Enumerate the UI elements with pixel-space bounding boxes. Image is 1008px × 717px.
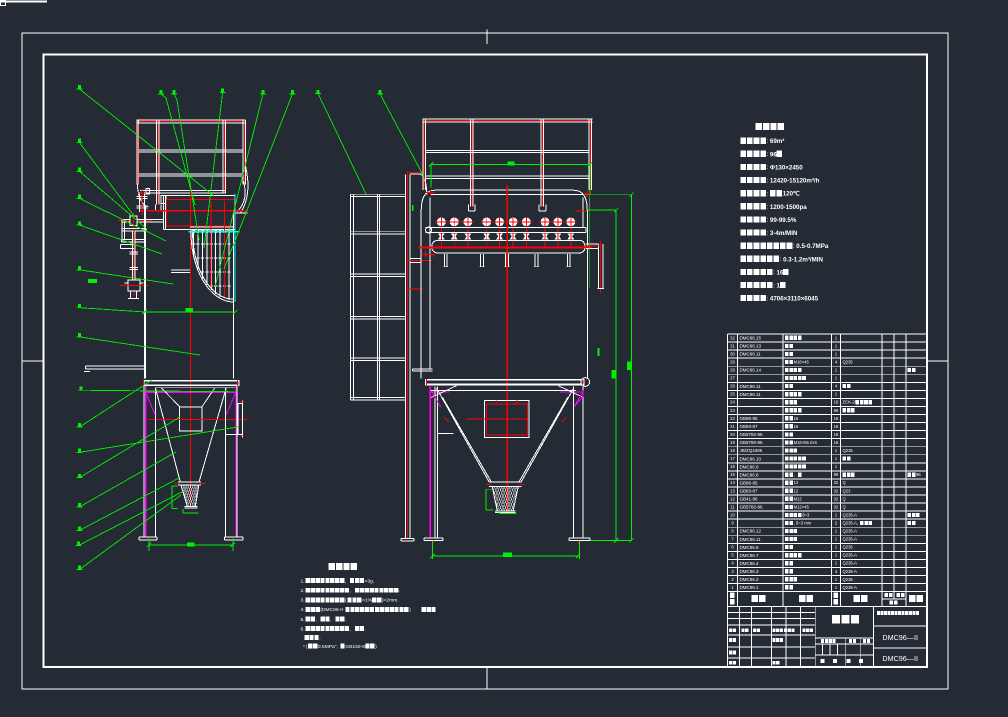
svg-text:JB/ZQ4385: JB/ZQ4385 [740, 448, 763, 453]
svg-text:DMC96.10: DMC96.10 [740, 456, 762, 461]
svg-text:GB41-86: GB41-86 [740, 497, 759, 502]
svg-text:27: 27 [730, 376, 735, 381]
svg-text:.: . [365, 627, 366, 632]
svg-text:12: 12 [794, 488, 799, 493]
svg-text::: : [767, 217, 769, 224]
svg-text:.: . [345, 618, 346, 623]
svg-text:5.: 5. [301, 617, 305, 623]
svg-text:16: 16 [730, 464, 735, 469]
svg-text:DMC96.8: DMC96.8 [740, 545, 760, 550]
svg-text:Q235-A: Q235-A [843, 585, 858, 590]
svg-text:20: 20 [730, 432, 735, 437]
svg-text:Q235: Q235 [843, 448, 854, 453]
svg-text::: : [767, 295, 769, 302]
svg-text:,: , [350, 627, 351, 632]
svg-text:96: 96 [834, 472, 839, 477]
svg-text:DMC96.11: DMC96.11 [740, 392, 762, 397]
svg-text:0.5MPa",: 0.5MPa", [318, 644, 338, 650]
svg-text:GB5782-86: GB5782-86 [740, 505, 764, 510]
svg-text:4706×3110×6045: 4706×3110×6045 [770, 296, 819, 303]
svg-text:96: 96 [770, 151, 777, 158]
svg-text:Q235-A: Q235-A [843, 512, 858, 517]
svg-text:,: , [794, 472, 795, 477]
svg-text:16: 16 [834, 416, 839, 421]
svg-text:DMC96.8: DMC96.8 [740, 472, 760, 477]
svg-text:Φ130×2450: Φ130×2450 [770, 164, 803, 171]
svg-text:DMC96.11: DMC96.11 [740, 384, 762, 389]
svg-text:DMC96.15: DMC96.15 [740, 336, 762, 341]
svg-text:Q235-A: Q235-A [843, 553, 858, 558]
svg-text:2.: 2. [301, 588, 305, 594]
svg-text:GB96-85: GB96-85 [740, 416, 759, 421]
svg-text:DMC96.1: DMC96.1 [740, 585, 760, 590]
svg-text:GB5780-86: GB5780-86 [740, 440, 764, 445]
svg-text:M12×45: M12×45 [794, 504, 810, 509]
svg-text:δ=3: δ=3 [802, 512, 810, 517]
svg-text:16: 16 [834, 424, 839, 429]
svg-text::: : [767, 151, 769, 158]
svg-text::: : [767, 230, 769, 237]
svg-text:31: 31 [730, 343, 735, 348]
svg-text:11: 11 [730, 504, 735, 509]
svg-text::: : [767, 190, 769, 197]
svg-text:14: 14 [730, 480, 735, 485]
svg-text:,: , [330, 618, 331, 623]
svg-text:0.3-1.2m³/MIN: 0.3-1.2m³/MIN [783, 256, 823, 263]
svg-text:M12: M12 [794, 496, 803, 501]
svg-text:DMC96.13: DMC96.13 [740, 344, 762, 349]
svg-text::: : [767, 204, 769, 211]
svg-text:16: 16 [794, 416, 799, 421]
svg-text:DMC96.11: DMC96.11 [740, 352, 762, 357]
svg-text:DMC96.11: DMC96.11 [740, 537, 762, 542]
svg-text:DMC96.12: DMC96.12 [740, 529, 762, 534]
svg-text:24: 24 [730, 400, 735, 405]
svg-text:GB96-85: GB96-85 [740, 480, 759, 485]
svg-text:(DMC96-II: (DMC96-II [320, 607, 343, 613]
svg-text:16: 16 [834, 440, 839, 445]
svg-text:32: 32 [834, 504, 839, 509]
svg-text:Q235-A,: Q235-A, [843, 520, 859, 525]
svg-text:DMC96.9: DMC96.9 [740, 464, 760, 469]
svg-text:30: 30 [730, 351, 735, 356]
svg-text:GB93-87: GB93-87 [740, 424, 759, 429]
svg-text::: : [319, 636, 320, 641]
svg-text:32: 32 [834, 496, 839, 501]
svg-text:GB5782-86: GB5782-86 [740, 432, 764, 437]
svg-text:Q235: Q235 [843, 577, 854, 582]
svg-text:<1%,: <1%, [362, 598, 373, 604]
svg-text:1200-1500pa: 1200-1500pa [770, 204, 807, 211]
svg-text:18: 18 [730, 448, 735, 453]
svg-text:Q235-A: Q235-A [843, 569, 858, 574]
svg-text:3-4m/MIN: 3-4m/MIN [770, 230, 798, 237]
svg-text:96: 96 [834, 408, 839, 413]
svg-text::: : [780, 256, 782, 263]
svg-text:DMC96—II: DMC96—II [882, 654, 918, 663]
svg-text:6.: 6. [301, 626, 305, 632]
svg-text:<3g.: <3g. [365, 578, 375, 584]
svg-text:13: 13 [730, 488, 735, 493]
svg-text:Q235-A: Q235-A [843, 529, 858, 534]
svg-text:16: 16 [834, 432, 839, 437]
svg-text:DMC96.2: DMC96.2 [740, 577, 760, 582]
svg-text::: : [767, 177, 769, 184]
svg-text:99-99.5%: 99-99.5% [770, 217, 797, 224]
svg-text:Q23: Q23 [843, 488, 852, 493]
svg-text:12420-15120m³/h: 12420-15120m³/h [770, 178, 820, 185]
svg-text:DMC96.4: DMC96.4 [740, 561, 760, 566]
svg-text:28: 28 [730, 368, 735, 373]
svg-text::: : [793, 243, 795, 250]
svg-text:29: 29 [730, 359, 735, 364]
svg-text:,: , [316, 618, 317, 623]
svg-text:,: , [350, 589, 351, 594]
svg-text:Q235-A: Q235-A [843, 537, 858, 542]
svg-text:ZCK-25: ZCK-25 [843, 400, 858, 405]
svg-text:.: . [399, 589, 400, 594]
svg-text:16: 16 [834, 400, 839, 405]
svg-text:21: 21 [730, 424, 735, 429]
svg-text:32: 32 [834, 480, 839, 485]
svg-text:120℃: 120℃ [783, 191, 800, 198]
svg-text:69m²: 69m² [770, 138, 784, 145]
svg-text:GB93-87: GB93-87 [740, 488, 759, 493]
svg-text:4.: 4. [301, 607, 305, 613]
svg-text:Q235: Q235 [843, 545, 854, 550]
svg-text:DMC96—II: DMC96—II [882, 633, 918, 642]
svg-text:DMC96.3: DMC96.3 [740, 569, 760, 574]
svg-text:16: 16 [777, 269, 784, 276]
svg-text:GB150-98: GB150-98 [345, 644, 368, 650]
svg-text:3.: 3. [301, 598, 305, 604]
svg-text:M16×55 mm: M16×55 mm [794, 440, 818, 445]
svg-text:19: 19 [730, 440, 735, 445]
svg-text:15: 15 [730, 472, 735, 477]
svg-text:10: 10 [730, 512, 735, 517]
svg-text:DMC96.14: DMC96.14 [740, 368, 762, 373]
svg-text:1.: 1. [301, 578, 305, 584]
svg-text:16: 16 [794, 424, 799, 429]
svg-text::: : [773, 282, 775, 289]
svg-text:23: 23 [730, 408, 735, 413]
svg-text:17: 17 [730, 456, 735, 461]
svg-text:)>2mm.: )>2mm. [382, 598, 399, 604]
svg-text:,: , [345, 579, 346, 584]
svg-text:96: 96 [916, 472, 921, 477]
svg-text:12: 12 [730, 496, 735, 501]
svg-text:25: 25 [730, 392, 735, 397]
svg-text:Q235-A: Q235-A [843, 561, 858, 566]
svg-text:, δ=3 mm: , δ=3 mm [794, 520, 812, 525]
svg-text:0.5-0.7MPa: 0.5-0.7MPa [796, 243, 829, 250]
svg-text:DMC96.7: DMC96.7 [740, 553, 760, 558]
svg-text:26: 26 [730, 384, 735, 389]
svg-text::: : [767, 138, 769, 145]
svg-text:32: 32 [834, 488, 839, 493]
svg-text:12: 12 [794, 480, 799, 485]
svg-text:32: 32 [730, 335, 735, 340]
svg-text::: : [773, 269, 775, 276]
svg-text::: : [767, 164, 769, 171]
svg-text:Q235: Q235 [843, 359, 854, 364]
svg-text:22: 22 [730, 416, 735, 421]
svg-text:M16×45: M16×45 [794, 359, 810, 364]
